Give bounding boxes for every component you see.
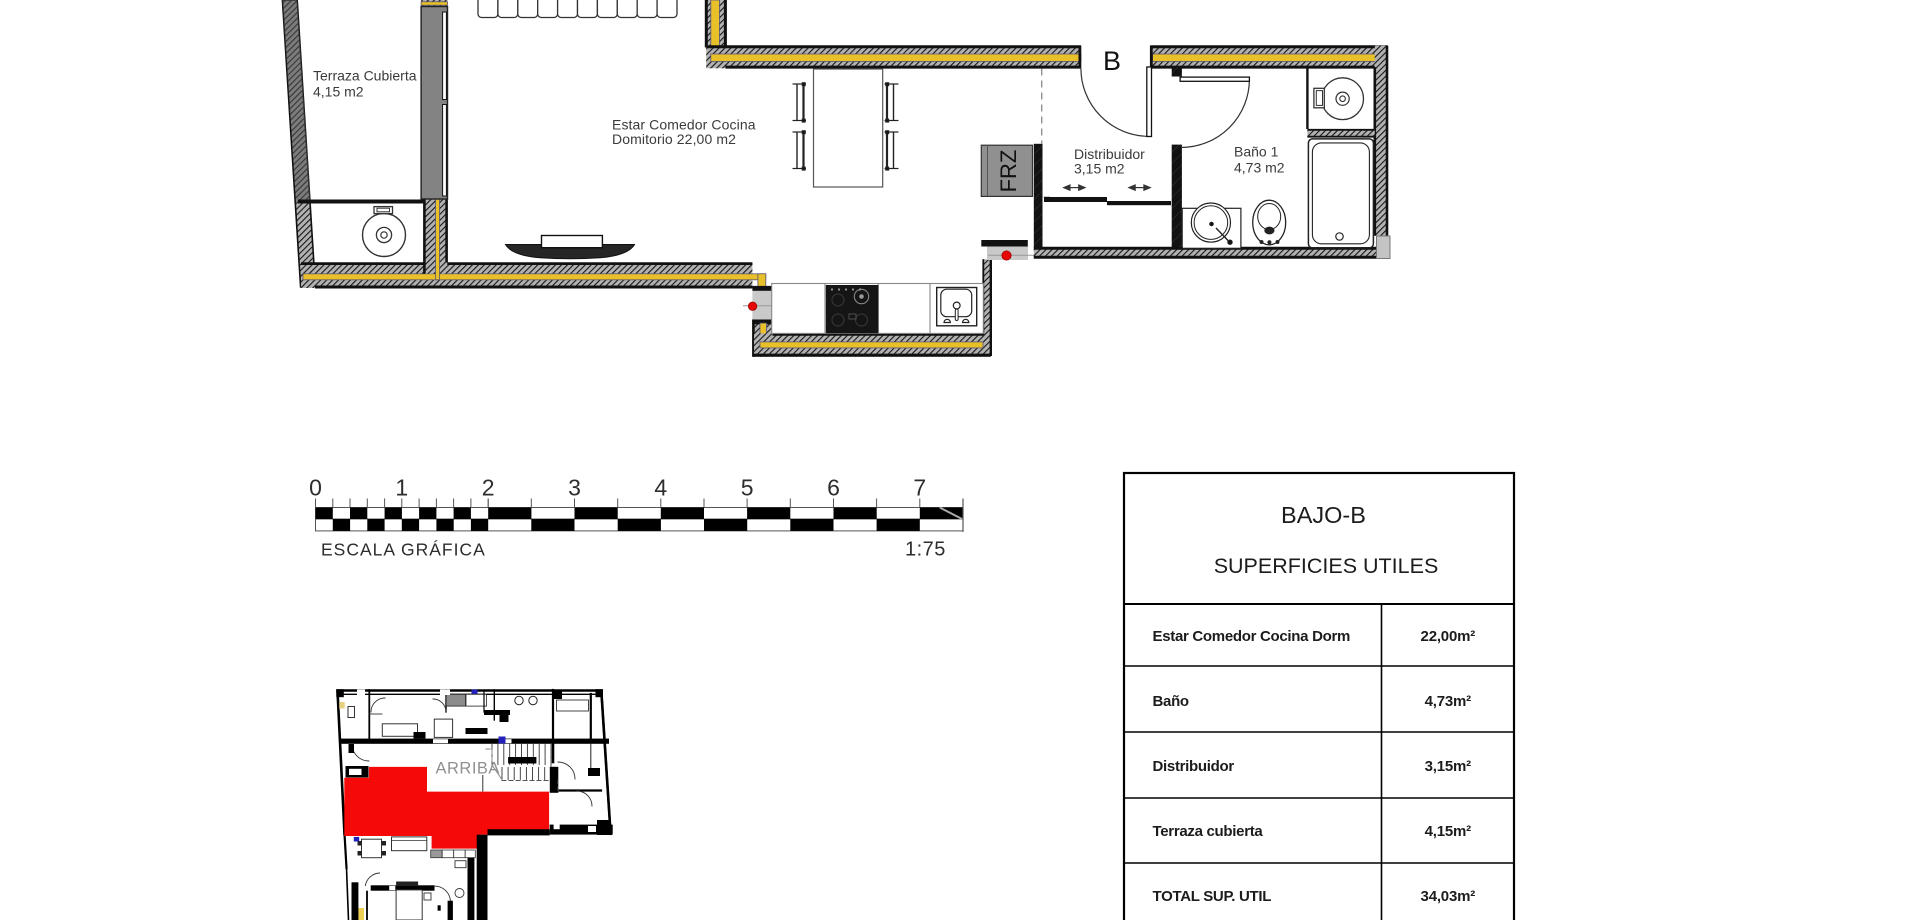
svg-text:4,73m²: 4,73m² [1425,693,1472,710]
svg-text:0: 0 [309,475,322,501]
svg-text:Terraza cubierta: Terraza cubierta [1153,823,1264,840]
svg-text:3,15m²: 3,15m² [1425,758,1472,775]
svg-text:ESCALA GRÁFICA: ESCALA GRÁFICA [321,540,486,560]
svg-text:Estar Comedor Cocina Dorm: Estar Comedor Cocina Dorm [1153,628,1351,645]
svg-text:34,03m²: 34,03m² [1421,888,1476,905]
svg-text:3,15 m2: 3,15 m2 [1074,161,1125,177]
svg-text:1:75: 1:75 [905,539,946,561]
svg-text:4,15m²: 4,15m² [1425,823,1472,840]
svg-text:5: 5 [741,475,754,501]
svg-text:Domitorio 22,00 m2: Domitorio 22,00 m2 [612,131,736,147]
svg-text:22,00m²: 22,00m² [1421,628,1476,645]
svg-text:B: B [1103,46,1121,76]
svg-text:FRZ: FRZ [996,150,1021,193]
svg-text:1: 1 [395,475,408,501]
svg-text:ARRIBA: ARRIBA [436,760,500,778]
svg-text:4: 4 [654,475,667,501]
svg-text:4,73 m2: 4,73 m2 [1234,160,1285,176]
svg-text:SUPERFICIES UTILES: SUPERFICIES UTILES [1214,554,1439,578]
svg-text:Distribuidor: Distribuidor [1153,758,1235,775]
svg-text:Terraza Cubierta: Terraza Cubierta [313,68,417,84]
svg-text:4,15 m2: 4,15 m2 [313,84,364,100]
svg-text:TOTAL SUP. UTIL: TOTAL SUP. UTIL [1153,888,1272,905]
svg-text:BAJO-B: BAJO-B [1281,502,1366,528]
svg-text:3: 3 [568,475,581,501]
svg-text:Baño 1: Baño 1 [1234,144,1279,160]
svg-text:7: 7 [913,475,926,501]
svg-text:Baño: Baño [1153,693,1189,710]
svg-text:2: 2 [482,475,495,501]
svg-text:6: 6 [827,475,840,501]
